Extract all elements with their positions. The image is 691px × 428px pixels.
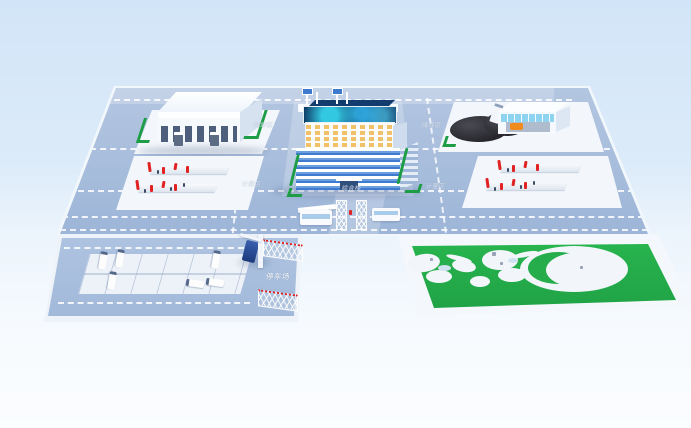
north-gate-post: [346, 92, 348, 104]
north-gate-post: [316, 92, 318, 104]
red-equipment: [524, 182, 527, 189]
park-oval-center: [546, 252, 618, 288]
worker-figure: [157, 170, 159, 174]
area-label-main-building: 综合楼: [341, 183, 362, 192]
gate-sign: [302, 88, 313, 95]
worker-figure: [533, 181, 535, 185]
loader-shed-roof: [498, 102, 568, 112]
hedge: [287, 188, 305, 197]
gatehouse-window: [374, 211, 398, 215]
area-label-parking: 停车场: [265, 271, 291, 282]
gate-sign: [332, 88, 343, 95]
area-label-loading: 装卸区: [253, 120, 274, 129]
worker-figure: [520, 185, 522, 189]
park-pond: [438, 265, 451, 271]
park-path: [426, 270, 452, 283]
park-pavilion: [500, 262, 503, 265]
red-equipment: [512, 165, 515, 172]
depot-shadow: [138, 146, 268, 156]
lane-line-vertical: [426, 98, 447, 233]
worker-figure: [170, 187, 172, 191]
red-equipment: [536, 164, 539, 171]
worker-figure: [494, 187, 496, 191]
red-equipment: [150, 185, 153, 192]
docked-truck: [174, 132, 183, 146]
worker-figure: [507, 168, 509, 172]
weighbridge-ramp: [487, 182, 568, 190]
lane-line: [64, 247, 244, 249]
park-pavilion: [580, 266, 583, 269]
industrial-park-3d-scene: 装卸区 储煤区 计量区 计量区 综合楼 停车场: [0, 0, 691, 428]
area-label-weighing-left: 计量区: [241, 179, 262, 188]
gate-lattice-tower: [336, 200, 347, 230]
gate-barrier-light: [349, 210, 352, 215]
main-building-upper-floors: [305, 122, 395, 150]
hedge: [405, 184, 423, 193]
park-path: [470, 276, 490, 287]
docked-truck: [210, 132, 219, 146]
worker-figure: [144, 189, 146, 193]
worker-figure: [183, 183, 185, 187]
red-equipment: [500, 183, 503, 190]
gatehouse-window: [302, 214, 330, 219]
area-label-weighing-right: 计量区: [425, 181, 446, 190]
wheel-loader: [510, 123, 523, 130]
red-equipment: [174, 184, 177, 191]
area-label-coal: 储煤区: [421, 120, 442, 129]
red-equipment: [162, 167, 165, 174]
park-pavilion: [492, 252, 496, 256]
loader-shed-glass: [500, 114, 554, 122]
depot-dock-bays: [161, 126, 237, 142]
gate-lattice-tower: [356, 200, 367, 230]
red-equipment: [186, 166, 189, 173]
lane-line: [58, 302, 250, 304]
park-pond: [508, 258, 518, 263]
park-pavilion: [430, 258, 433, 261]
